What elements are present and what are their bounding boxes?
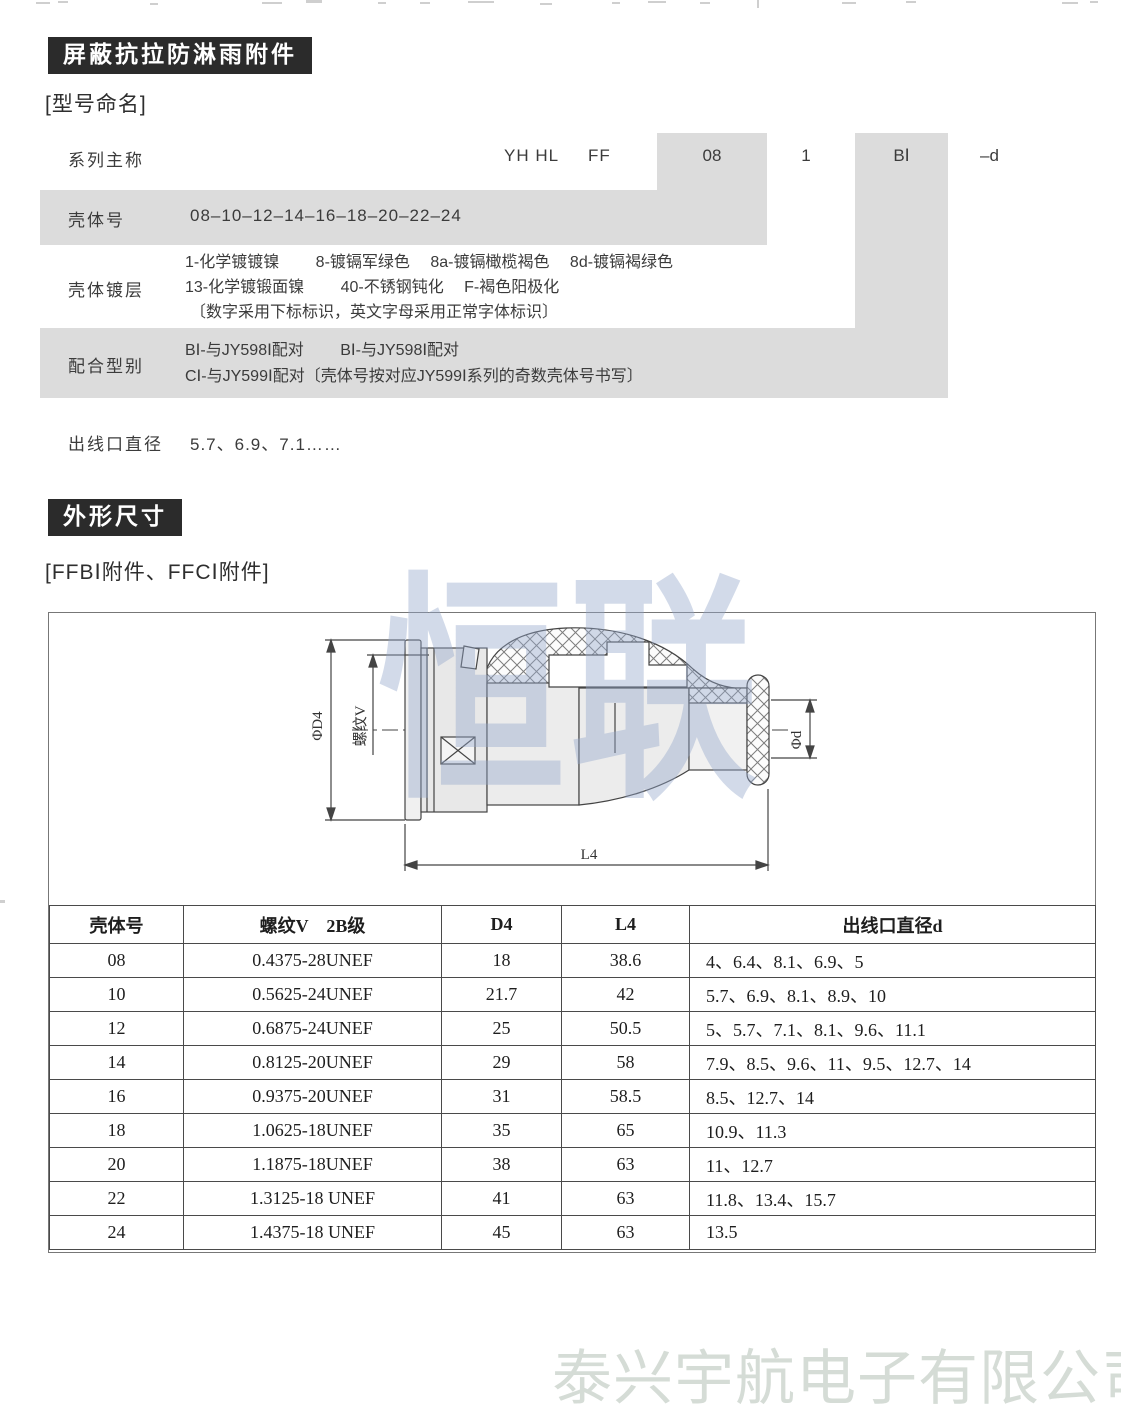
table-cell: 0.8125-20UNEF — [184, 1046, 442, 1080]
table-cell: 11.8、13.4、15.7 — [690, 1182, 1096, 1216]
plating-label: 壳体镀层 — [68, 276, 144, 301]
shell-number-value: 08–10–12–14–16–18–20–22–24 — [190, 206, 462, 226]
table-cell: 25 — [442, 1012, 562, 1046]
table-cell: 08 — [50, 944, 184, 978]
table-cell: 45 — [442, 1216, 562, 1250]
table-cell: 29 — [442, 1046, 562, 1080]
table-cell: 1.0625-18UNEF — [184, 1114, 442, 1148]
table-cell: 31 — [442, 1080, 562, 1114]
column-header: D4 — [442, 906, 562, 944]
table-cell: 42 — [562, 978, 690, 1012]
washer-tab — [461, 646, 479, 669]
footer-watermark: 泰兴宇航电子有限公司 — [552, 1348, 1121, 1411]
outline-drawing-box: ΦD4 螺纹V Φd L4 壳体号螺纹V 2B级D4L4出线口直径d080.43… — [48, 612, 1096, 1253]
table-cell: 24 — [50, 1216, 184, 1250]
code-type: FF — [588, 146, 611, 166]
table-cell: 35 — [442, 1114, 562, 1148]
table-cell: 38.6 — [562, 944, 690, 978]
table-cell: 4、6.4、8.1、6.9、5 — [690, 944, 1096, 978]
mate-code-column — [855, 133, 948, 398]
plating-line-2: 13-化学镀锻面镍 40-不锈钢钝化 F-褐色阳极化 — [185, 275, 559, 300]
table-cell: 13.5 — [690, 1216, 1096, 1250]
plating-line-3: 〔数字采用下标标识，英文字母采用正常字体标识〕 — [190, 300, 558, 325]
table-cell: 5.7、6.9、8.1、8.9、10 — [690, 978, 1096, 1012]
coupling-nut — [421, 648, 487, 812]
table-cell: 1.3125-18 UNEF — [184, 1182, 442, 1216]
table-row: 100.5625-24UNEF21.7425.7、6.9、8.1、8.9、10 — [50, 978, 1096, 1012]
table-cell: 11、12.7 — [690, 1148, 1096, 1182]
shell-body — [487, 683, 579, 805]
table-row: 160.9375-20UNEF3158.58.5、12.7、14 — [50, 1080, 1096, 1114]
model-naming-diagram: 系列主称 YH HL FF 08 1 BⅠ –d 壳体号 08–10–12–14… — [0, 0, 1121, 470]
cable-end-flange — [747, 675, 769, 785]
table-cell: 14 — [50, 1046, 184, 1080]
table-cell: 0.9375-20UNEF — [184, 1080, 442, 1114]
variant-subheading: [FFBⅠ附件、FFCⅠ附件] — [45, 556, 270, 586]
table-cell: 0.6875-24UNEF — [184, 1012, 442, 1046]
table-cell: 41 — [442, 1182, 562, 1216]
series-label: 系列主称 — [68, 146, 144, 171]
column-header: 螺纹V 2B级 — [184, 906, 442, 944]
code-mate: BⅠ — [855, 146, 948, 166]
code-plating: 1 — [786, 146, 826, 166]
table-cell: 5、5.7、7.1、8.1、9.6、11.1 — [690, 1012, 1096, 1046]
column-header: 壳体号 — [50, 906, 184, 944]
column-header: L4 — [562, 906, 690, 944]
scan-mark — [0, 900, 5, 903]
table-cell: 10 — [50, 978, 184, 1012]
table-cell: 18 — [50, 1114, 184, 1148]
section-title-dimensions: 外形尺寸 — [48, 499, 182, 536]
mate-line-1: BⅠ-与JY598Ⅰ配对 BⅠ-与JY598Ⅰ配对 — [185, 338, 459, 363]
dim-label-thread: 螺纹V — [352, 705, 369, 746]
table-row: 181.0625-18UNEF356510.9、11.3 — [50, 1114, 1096, 1148]
table-row: 080.4375-28UNEF1838.64、6.4、8.1、6.9、5 — [50, 944, 1096, 978]
table-cell: 21.7 — [442, 978, 562, 1012]
connector-cross-section-drawing: ΦD4 螺纹V Φd L4 — [49, 613, 1095, 905]
code-series: YH HL — [504, 146, 559, 166]
table-cell: 50.5 — [562, 1012, 690, 1046]
mate-type-label: 配合型别 — [68, 352, 144, 377]
table-cell: 38 — [442, 1148, 562, 1182]
table-cell: 1.1875-18UNEF — [184, 1148, 442, 1182]
table-cell: 1.4375-18 UNEF — [184, 1216, 442, 1250]
table-cell: 63 — [562, 1182, 690, 1216]
table-row: 241.4375-18 UNEF456313.5 — [50, 1216, 1096, 1250]
column-header: 出线口直径d — [690, 906, 1096, 944]
table-cell: 10.9、11.3 — [690, 1114, 1096, 1148]
dim-label-d4: ΦD4 — [310, 711, 326, 741]
table-cell: 16 — [50, 1080, 184, 1114]
cable-braid — [689, 688, 747, 703]
table-header-row: 壳体号螺纹V 2B级D4L4出线口直径d — [50, 906, 1096, 944]
dim-label-l4: L4 — [581, 847, 598, 863]
datasheet-page: 屏蔽抗拉防淋雨附件 [型号命名] 系列主称 YH HL FF 08 1 BⅠ –… — [0, 0, 1121, 1424]
table-cell: 18 — [442, 944, 562, 978]
dimensions-table: 壳体号螺纹V 2B级D4L4出线口直径d080.4375-28UNEF1838.… — [49, 905, 1096, 1250]
table-cell: 22 — [50, 1182, 184, 1216]
table-row: 140.8125-20UNEF29587.9、8.5、9.6、11、9.5、12… — [50, 1046, 1096, 1080]
table-cell: 12 — [50, 1012, 184, 1046]
outlet-dia-label: 出线口直径 — [68, 430, 163, 455]
code-shell: 08 — [657, 146, 767, 166]
table-cell: 58.5 — [562, 1080, 690, 1114]
table-row: 221.3125-18 UNEF416311.8、13.4、15.7 — [50, 1182, 1096, 1216]
outlet-dia-value: 5.7、6.9、7.1…… — [190, 430, 342, 455]
table-cell: 7.9、8.5、9.6、11、9.5、12.7、14 — [690, 1046, 1096, 1080]
rear-taper — [579, 688, 689, 805]
shell-number-label: 壳体号 — [68, 206, 125, 231]
table-cell: 0.4375-28UNEF — [184, 944, 442, 978]
table-cell: 58 — [562, 1046, 690, 1080]
table-cell: 0.5625-24UNEF — [184, 978, 442, 1012]
table-row: 120.6875-24UNEF2550.55、5.7、7.1、8.1、9.6、1… — [50, 1012, 1096, 1046]
table-cell: 8.5、12.7、14 — [690, 1080, 1096, 1114]
plating-line-1: 1-化学镀镀镍 8-镀镉军绿色 8a-镀镉橄榄褐色 8d-镀镉褐绿色 — [185, 250, 673, 275]
table-cell: 63 — [562, 1216, 690, 1250]
dim-label-d: Φd — [789, 730, 805, 749]
front-flange — [405, 640, 421, 820]
table-cell: 20 — [50, 1148, 184, 1182]
table-cell: 63 — [562, 1148, 690, 1182]
mate-line-2: CⅠ-与JY599Ⅰ配对〔壳体号按对应JY599Ⅰ系列的奇数壳体号书写〕 — [185, 364, 643, 389]
table-cell: 65 — [562, 1114, 690, 1148]
code-outlet: –d — [980, 146, 999, 166]
table-row: 201.1875-18UNEF386311、12.7 — [50, 1148, 1096, 1182]
